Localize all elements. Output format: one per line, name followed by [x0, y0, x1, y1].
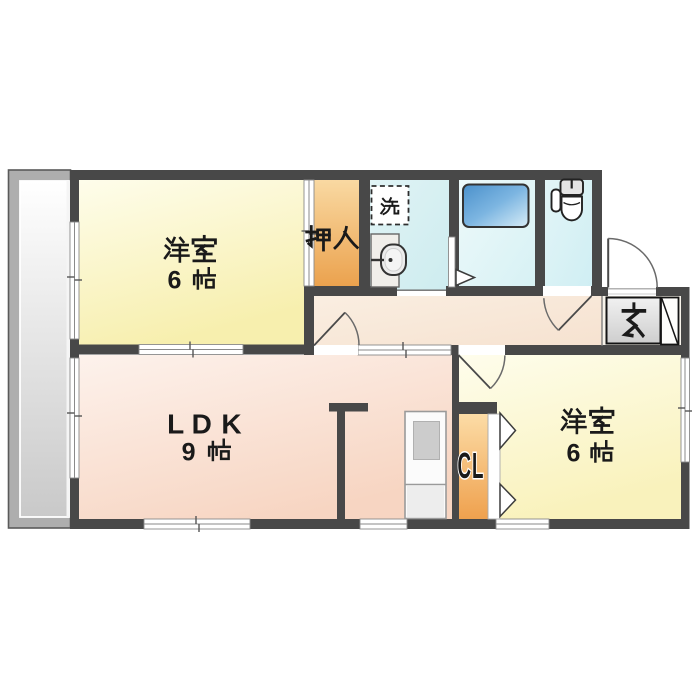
svg-text:K: K	[221, 409, 241, 440]
svg-text:6: 6	[567, 440, 581, 468]
svg-text:6: 6	[168, 267, 182, 295]
svg-text:L: L	[167, 409, 184, 440]
svg-text:CL: CL	[458, 447, 485, 487]
svg-text:9: 9	[182, 439, 196, 467]
svg-text:D: D	[192, 409, 212, 440]
